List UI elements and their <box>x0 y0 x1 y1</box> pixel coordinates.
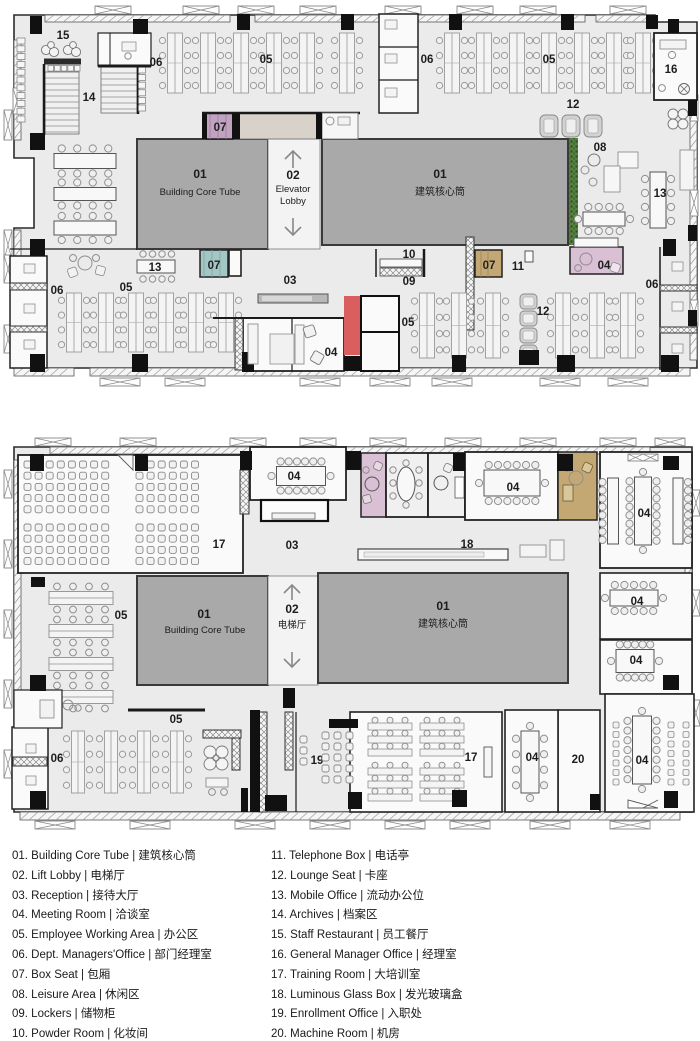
svg-text:02: 02 <box>286 168 300 182</box>
svg-text:04: 04 <box>631 596 644 608</box>
svg-text:04: 04 <box>598 260 611 272</box>
svg-text:11: 11 <box>512 261 525 273</box>
svg-text:04: 04 <box>636 755 649 767</box>
svg-text:20: 20 <box>572 754 585 766</box>
svg-text:06: 06 <box>51 285 64 297</box>
svg-text:13: 13 <box>149 262 162 274</box>
svg-text:01: 01 <box>433 167 447 181</box>
svg-text:02: 02 <box>285 602 299 616</box>
svg-text:05: 05 <box>260 54 273 66</box>
svg-text:05: 05 <box>543 54 556 66</box>
svg-text:Building Core Tube: Building Core Tube <box>160 187 241 198</box>
svg-text:建筑核心筒: 建筑核心筒 <box>415 185 465 198</box>
svg-text:06: 06 <box>421 54 434 66</box>
svg-text:01: 01 <box>197 607 211 621</box>
svg-text:16: 16 <box>665 64 678 76</box>
svg-text:Lobby: Lobby <box>280 196 306 207</box>
svg-text:04: 04 <box>507 482 520 494</box>
svg-text:04: 04 <box>526 752 539 764</box>
svg-text:05: 05 <box>402 317 415 329</box>
svg-text:07: 07 <box>214 122 227 134</box>
svg-text:Building Core Tube: Building Core Tube <box>165 625 246 636</box>
svg-text:13: 13 <box>654 188 667 200</box>
svg-text:15: 15 <box>57 30 70 42</box>
svg-text:04: 04 <box>630 655 643 667</box>
svg-text:电梯厅: 电梯厅 <box>278 619 307 631</box>
svg-text:17: 17 <box>213 539 226 551</box>
svg-text:04: 04 <box>638 508 651 520</box>
svg-text:04: 04 <box>288 471 301 483</box>
svg-text:12: 12 <box>567 99 580 111</box>
svg-text:04: 04 <box>325 347 338 359</box>
svg-text:03: 03 <box>286 540 299 552</box>
svg-text:17: 17 <box>465 752 478 764</box>
svg-text:14: 14 <box>83 92 96 104</box>
svg-text:06: 06 <box>150 57 163 69</box>
svg-text:05: 05 <box>120 282 133 294</box>
svg-text:19: 19 <box>311 755 324 767</box>
svg-text:06: 06 <box>646 279 659 291</box>
svg-text:09: 09 <box>403 276 416 288</box>
svg-text:01: 01 <box>193 167 207 181</box>
svg-text:07: 07 <box>208 260 221 272</box>
svg-text:Elevator: Elevator <box>276 184 311 195</box>
svg-text:01: 01 <box>436 599 450 613</box>
svg-text:建筑核心筒: 建筑核心筒 <box>418 617 468 630</box>
svg-text:05: 05 <box>115 610 128 622</box>
svg-text:08: 08 <box>594 142 607 154</box>
svg-text:05: 05 <box>170 714 183 726</box>
svg-text:06: 06 <box>51 753 64 765</box>
svg-text:03: 03 <box>284 275 297 287</box>
svg-text:07: 07 <box>483 260 496 272</box>
